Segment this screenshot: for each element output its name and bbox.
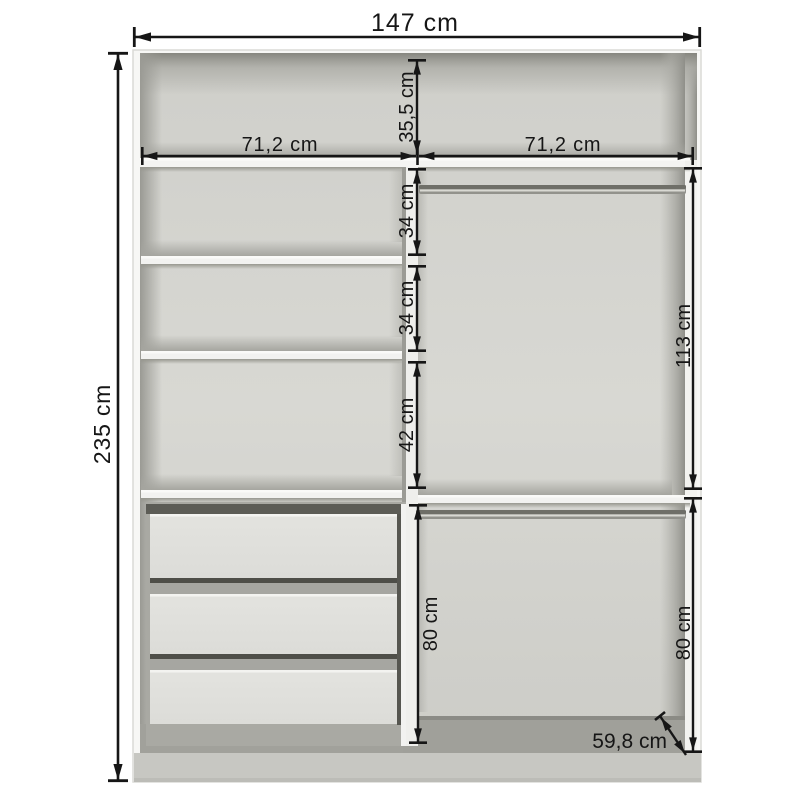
svg-text:59,8 cm: 59,8 cm — [592, 730, 667, 753]
svg-text:34 cm: 34 cm — [396, 281, 418, 335]
svg-text:147 cm: 147 cm — [371, 9, 459, 37]
svg-text:35,5 cm: 35,5 cm — [396, 71, 418, 142]
svg-text:235 cm: 235 cm — [89, 384, 115, 464]
svg-text:42 cm: 42 cm — [396, 398, 418, 452]
svg-text:80 cm: 80 cm — [420, 597, 442, 651]
svg-text:113 cm: 113 cm — [673, 304, 695, 368]
svg-text:34 cm: 34 cm — [396, 184, 418, 238]
svg-text:71,2 cm: 71,2 cm — [242, 134, 319, 156]
svg-text:80 cm: 80 cm — [673, 606, 695, 660]
svg-text:71,2 cm: 71,2 cm — [525, 134, 602, 156]
